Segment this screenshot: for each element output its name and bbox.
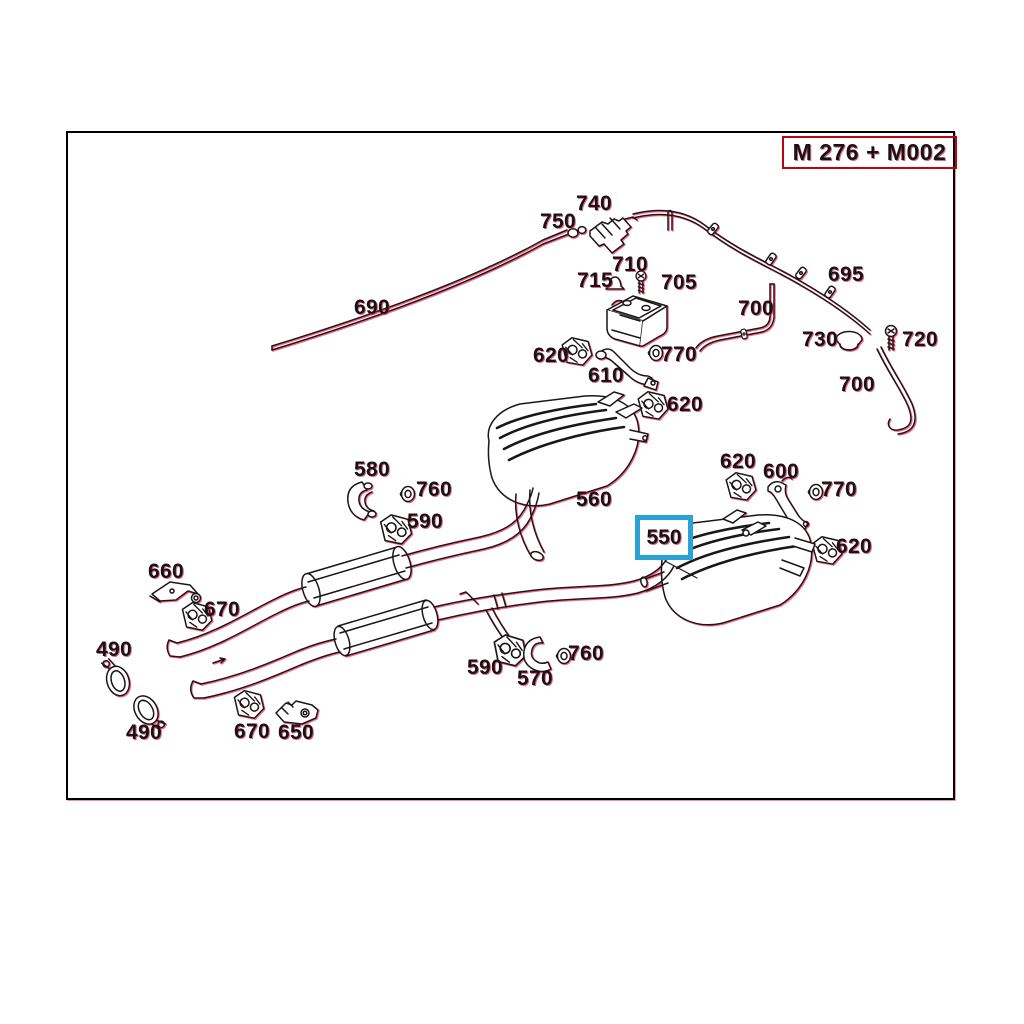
rubber-mount-620-3 <box>725 469 757 503</box>
part-label-490-1[interactable]: 490 <box>96 638 132 662</box>
nut-760-1 <box>401 487 415 502</box>
bracket-660 <box>150 582 201 603</box>
part-label-490-2[interactable]: 490 <box>126 721 162 745</box>
part-label-770-2[interactable]: 770 <box>821 478 857 502</box>
part-label-750[interactable]: 750 <box>540 210 576 234</box>
part-label-695[interactable]: 695 <box>828 263 864 287</box>
part-label-715[interactable]: 715 <box>577 269 613 293</box>
part-label-570[interactable]: 570 <box>517 667 553 691</box>
part-label-730[interactable]: 730 <box>802 328 838 352</box>
part-label-660[interactable]: 660 <box>148 560 184 584</box>
part-label-670-1[interactable]: 670 <box>204 598 240 622</box>
part-label-770-1[interactable]: 770 <box>661 343 697 367</box>
part-label-705[interactable]: 705 <box>661 271 697 295</box>
part-label-690[interactable]: 690 <box>354 296 390 320</box>
part-label-550[interactable]: 550 <box>646 526 681 550</box>
screw-720 <box>886 326 897 351</box>
center-muffler-upper <box>298 544 414 608</box>
exhaust-diagram-art <box>0 0 1024 1024</box>
part-label-720[interactable]: 720 <box>902 328 938 352</box>
part-label-670-2[interactable]: 670 <box>234 720 270 744</box>
front-pipe-lower <box>191 639 340 698</box>
part-label-650[interactable]: 650 <box>278 721 314 745</box>
rubber-mount-620-2 <box>637 388 669 422</box>
part-label-700-1[interactable]: 700 <box>738 297 774 321</box>
part-label-560[interactable]: 560 <box>576 488 612 512</box>
part-label-620-4[interactable]: 620 <box>836 535 872 559</box>
vacuum-line-690 <box>272 230 569 350</box>
part-label-620-2[interactable]: 620 <box>667 393 703 417</box>
part-label-590-1[interactable]: 590 <box>407 510 443 534</box>
part-label-610[interactable]: 610 <box>588 364 624 388</box>
connecting-pipe-to-550 <box>434 557 674 642</box>
part-label-600[interactable]: 600 <box>763 460 799 484</box>
part-label-700-2[interactable]: 700 <box>839 373 875 397</box>
part-label-760-1[interactable]: 760 <box>416 478 452 502</box>
part-label-620-3[interactable]: 620 <box>720 450 756 474</box>
part-label-590-2[interactable]: 590 <box>467 656 503 680</box>
part-label-760-2[interactable]: 760 <box>568 642 604 666</box>
part-label-710[interactable]: 710 <box>612 253 648 277</box>
center-muffler-lower <box>331 599 441 658</box>
cap-730 <box>836 331 862 350</box>
part-label-620-1[interactable]: 620 <box>533 344 569 368</box>
control-unit-705 <box>607 296 667 346</box>
clamp-580 <box>348 482 376 520</box>
part-label-740[interactable]: 740 <box>576 192 612 216</box>
rear-muffler-560 <box>488 392 648 562</box>
rubber-mount-670-2 <box>234 688 266 721</box>
selected-part-highlight[interactable]: 550 <box>635 515 693 560</box>
part-label-580[interactable]: 580 <box>354 458 390 482</box>
parts-diagram-page: M 276 + M002 <box>0 0 1024 1024</box>
vacuum-pipe-700-lower <box>877 347 915 434</box>
changeover-valve-740 <box>590 217 637 253</box>
